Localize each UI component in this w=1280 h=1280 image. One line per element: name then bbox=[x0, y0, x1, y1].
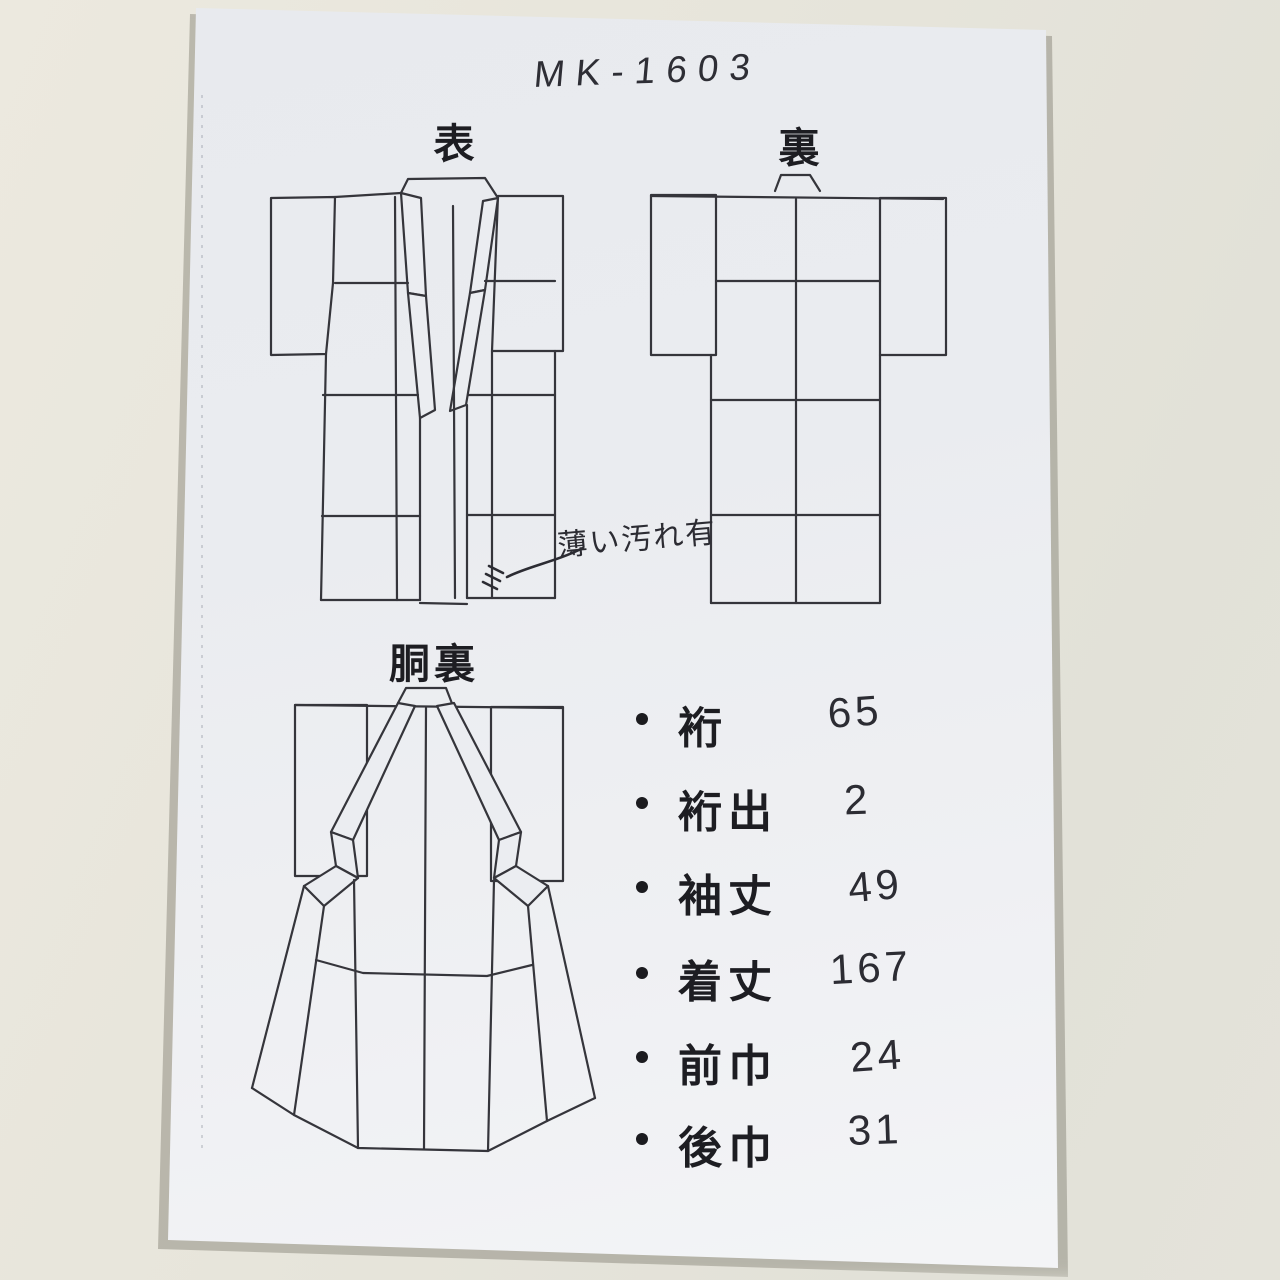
measurement-row: 裄 65 bbox=[636, 692, 883, 756]
measurement-value: 2 bbox=[843, 776, 872, 825]
measurement-value: 49 bbox=[846, 860, 905, 913]
measurement-row: 後巾 31 bbox=[636, 1112, 903, 1176]
measurement-label: 後巾 bbox=[678, 1112, 828, 1176]
bullet-icon bbox=[636, 1133, 648, 1145]
measurement-row: 裄出 2 bbox=[636, 776, 871, 840]
stain-marks bbox=[483, 566, 503, 589]
front-right-sleeve bbox=[492, 196, 563, 351]
measurement-value: 167 bbox=[829, 942, 913, 994]
bullet-icon bbox=[636, 797, 648, 809]
measurement-list: 裄 65 裄出 2 袖丈 49 着丈 167 前巾 24 後巾 31 bbox=[636, 0, 1056, 1280]
measurement-value: 65 bbox=[826, 686, 884, 738]
photo-of-document: MK-1603 表 裏 胴裏 bbox=[0, 0, 1280, 1280]
measurement-label: 袖丈 bbox=[678, 860, 828, 924]
measurement-row: 前巾 24 bbox=[636, 1030, 905, 1094]
bullet-icon bbox=[636, 967, 648, 979]
front-shoulder-line bbox=[335, 193, 401, 197]
paper-perforation-line bbox=[201, 95, 203, 1150]
measurement-value: 31 bbox=[847, 1105, 903, 1155]
measurement-value: 24 bbox=[849, 1030, 907, 1082]
bullet-icon bbox=[636, 1051, 648, 1063]
front-collar bbox=[401, 178, 498, 418]
lining-center-seam bbox=[424, 708, 426, 1149]
measurement-label: 着丈 bbox=[678, 946, 828, 1010]
measurement-label: 裄 bbox=[678, 692, 828, 756]
measurement-row: 袖丈 49 bbox=[636, 860, 903, 924]
front-left-sleeve bbox=[271, 197, 335, 355]
measurement-label: 前巾 bbox=[678, 1030, 828, 1094]
lining-diagram bbox=[236, 666, 622, 1168]
measurement-row: 着丈 167 bbox=[636, 946, 912, 1010]
bullet-icon bbox=[636, 881, 648, 893]
measurement-label: 裄出 bbox=[678, 776, 828, 840]
bullet-icon bbox=[636, 713, 648, 725]
stain-arrow bbox=[455, 540, 595, 610]
front-view-title: 表 bbox=[434, 110, 479, 170]
